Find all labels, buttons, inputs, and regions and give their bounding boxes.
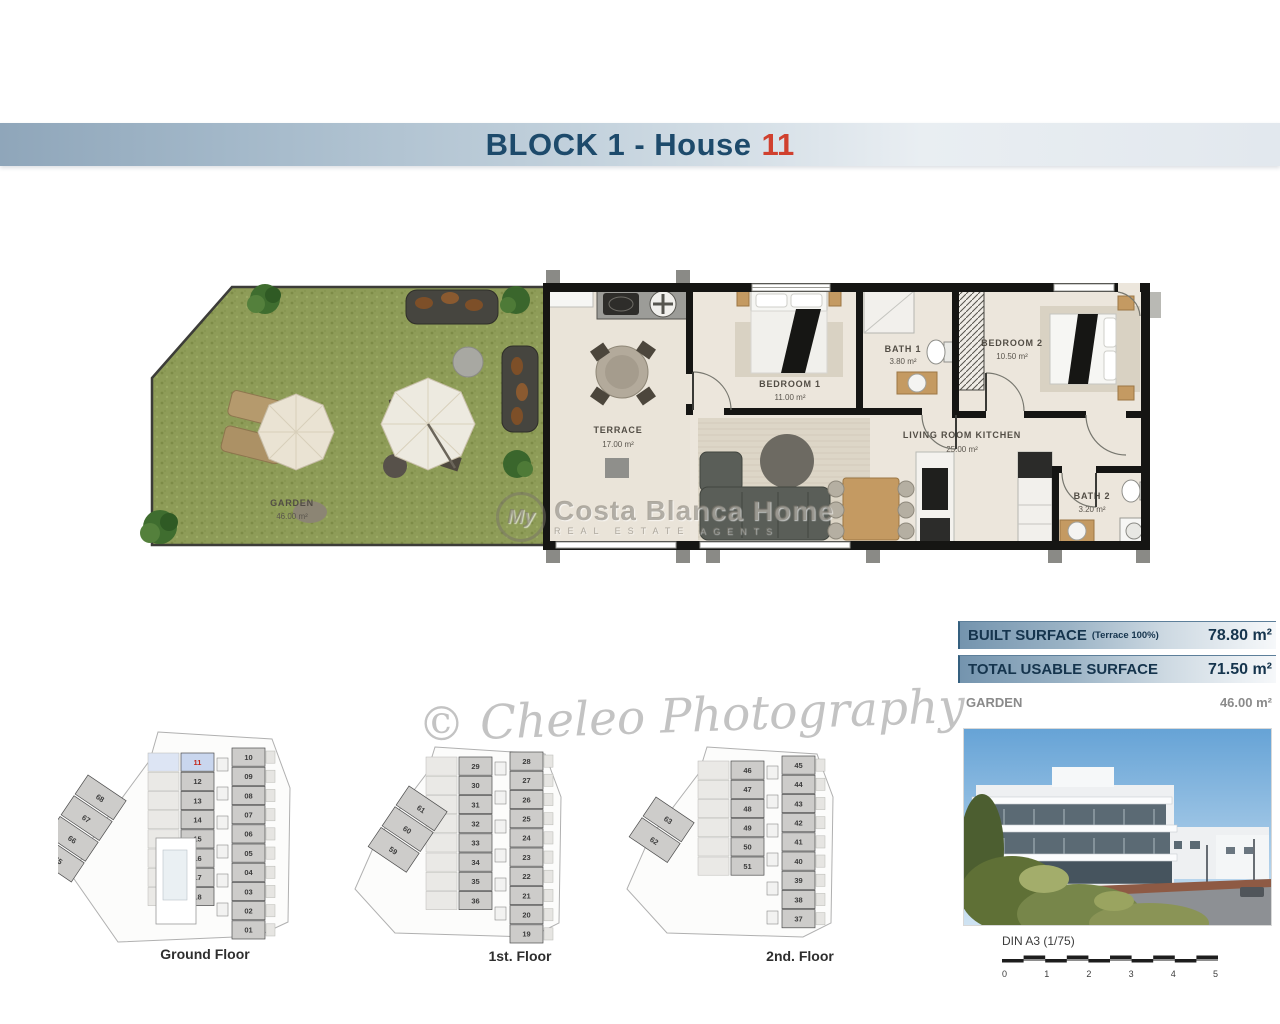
- unit-number: 41: [794, 838, 802, 847]
- unit-number: 26: [522, 795, 530, 804]
- room-area-living: 25.00 m²: [946, 445, 978, 454]
- balcony-cell: [816, 874, 825, 886]
- surface-note: (Terrace 100%): [1092, 630, 1159, 641]
- core-cell: [495, 762, 506, 775]
- room-label-bedroom2: BEDROOM 2: [981, 338, 1043, 348]
- unit-number: 32: [471, 820, 479, 829]
- terrace-cell: [426, 776, 457, 794]
- balcony-cell: [544, 774, 553, 786]
- unit-number: 38: [794, 895, 802, 904]
- scale-tick: 0: [1002, 969, 1007, 979]
- unit-number: 11: [194, 758, 202, 767]
- terrace-cell: [148, 811, 179, 829]
- keyplan-svg: 1112131415161718100908070605040302016867…: [58, 726, 320, 944]
- core-cell: [767, 795, 778, 808]
- unit-number: 10: [244, 753, 252, 762]
- garden-sofa-top: [406, 290, 498, 324]
- surface-label: TOTAL USABLE SURFACE: [968, 661, 1158, 678]
- unit-number: 12: [193, 777, 201, 786]
- balcony-cell: [266, 770, 275, 782]
- balcony-cell: [266, 751, 275, 763]
- core-cell: [767, 882, 778, 895]
- unit-number: 27: [522, 776, 530, 785]
- room-area-bedroom2: 10.50 m²: [996, 352, 1028, 361]
- room-label-garden: GARDEN: [270, 498, 314, 508]
- parasol-small: [258, 394, 334, 470]
- unit-number: 39: [794, 876, 802, 885]
- balcony-cell: [544, 793, 553, 805]
- balcony-cell: [544, 755, 553, 767]
- scale-bar: DIN A3 (1/75) 0 1 2 3 4 5: [1002, 934, 1232, 979]
- core-cell: [767, 824, 778, 837]
- unit-number: 02: [244, 907, 252, 916]
- core-cell: [767, 911, 778, 924]
- bedroom2-furniture: [1040, 296, 1140, 400]
- garden-table: [453, 347, 483, 377]
- surface-table: BUILT SURFACE (Terrace 100%) 78.80 m² TO…: [958, 621, 1276, 722]
- balcony-cell: [266, 866, 275, 878]
- unit-number: 23: [522, 853, 530, 862]
- unit-number: 25: [522, 815, 530, 824]
- unit-number: 01: [244, 926, 252, 935]
- balcony-cell: [544, 909, 553, 921]
- surface-label: BUILT SURFACE: [968, 627, 1087, 644]
- room-label-bath2: BATH 2: [1074, 491, 1111, 501]
- unit-number: 43: [794, 799, 802, 808]
- scale-tick: 2: [1086, 969, 1091, 979]
- unit-number: 20: [522, 911, 530, 920]
- unit-number: 46: [743, 766, 751, 775]
- unit-number: 13: [193, 796, 201, 805]
- keyplan-ground-floor: 1112131415161718100908070605040302016867…: [58, 726, 320, 949]
- unit-number: 42: [794, 819, 802, 828]
- room-label-bath1: BATH 1: [885, 344, 922, 354]
- unit-number: 06: [244, 830, 252, 839]
- terrace-cell: [698, 761, 729, 779]
- core-cell: [767, 766, 778, 779]
- scale-tick: 1: [1044, 969, 1049, 979]
- pool: [163, 850, 187, 900]
- keyplan-label-second: 2nd. Floor: [715, 948, 885, 964]
- surface-row-built: BUILT SURFACE (Terrace 100%) 78.80 m²: [958, 621, 1276, 649]
- room-area-bedroom1: 11.00 m²: [775, 393, 806, 402]
- terrace-cell: [426, 891, 457, 909]
- unit-number: 14: [193, 816, 202, 825]
- terrace-cell: [698, 780, 729, 798]
- surface-row-usable: TOTAL USABLE SURFACE 71.50 m²: [958, 655, 1276, 683]
- unit-number: 22: [522, 872, 530, 881]
- room-area-terrace: 17.00 m²: [602, 440, 634, 449]
- terrace-cell: [426, 757, 457, 775]
- core-cell: [217, 874, 228, 887]
- unit-number: 34: [471, 858, 480, 867]
- unit-number: 09: [244, 772, 252, 781]
- main-floor-plan: GARDEN 46.00 m² TERRACE 17.00 m² BEDROOM…: [118, 266, 1166, 570]
- keyplan-svg: 2930313233343536282726252423222120196160…: [333, 731, 598, 946]
- balcony-cell: [266, 789, 275, 801]
- balcony-cell: [816, 759, 825, 771]
- balcony-cell: [816, 817, 825, 829]
- unit-number: 24: [522, 834, 531, 843]
- unit-number: 04: [244, 868, 253, 877]
- balcony-cell: [544, 928, 553, 940]
- scale-ticks: 0 1 2 3 4 5: [1002, 969, 1218, 979]
- balcony-cell: [816, 893, 825, 905]
- surface-value: 78.80 m²: [1208, 627, 1272, 645]
- balcony-cell: [816, 778, 825, 790]
- wardrobe: [958, 290, 984, 390]
- unit-number: 03: [244, 887, 252, 896]
- unit-number: 45: [794, 761, 802, 770]
- balcony-cell: [544, 813, 553, 825]
- terrace-cell: [426, 853, 457, 871]
- core-cell: [495, 849, 506, 862]
- scale-tick: 3: [1129, 969, 1134, 979]
- page-title: BLOCK 1 - House: [486, 127, 752, 163]
- unit-number: 48: [743, 804, 751, 813]
- terrace-floor: [545, 287, 690, 545]
- unit-number: 08: [244, 791, 252, 800]
- scale-label: DIN A3 (1/75): [1002, 934, 1232, 948]
- balcony-cell: [816, 855, 825, 867]
- balcony-cell: [266, 905, 275, 917]
- balcony-cell: [266, 885, 275, 897]
- terrace-cell: [426, 872, 457, 890]
- balcony-cell: [816, 913, 825, 925]
- core-cell: [217, 816, 228, 829]
- core-cell: [495, 791, 506, 804]
- balcony-cell: [266, 809, 275, 821]
- unit-number: 36: [471, 896, 479, 905]
- garden-sofa-right: [502, 346, 538, 432]
- room-label-living: LIVING ROOM KITCHEN: [903, 430, 1021, 440]
- unit-number: 05: [244, 849, 252, 858]
- surface-value: 71.50 m²: [1208, 661, 1272, 679]
- plan-sheet: { "header": { "title": "BLOCK 1 - House"…: [0, 0, 1280, 1024]
- page-title-house-number: 11: [762, 127, 795, 163]
- unit-number: 35: [471, 877, 479, 886]
- balcony-cell: [544, 851, 553, 863]
- unit-number: 49: [743, 824, 751, 833]
- surface-value: 46.00 m²: [1220, 695, 1272, 710]
- terrace-cell: [698, 838, 729, 856]
- header-band: BLOCK 1 - House 11: [0, 123, 1280, 166]
- unit-number: 37: [794, 915, 802, 924]
- core-cell: [217, 787, 228, 800]
- surface-label: GARDEN: [966, 695, 1022, 710]
- room-area-garden: 46.00 m²: [276, 512, 308, 521]
- unit-number: 33: [471, 839, 479, 848]
- scale-tick: 4: [1171, 969, 1176, 979]
- garden-area: GARDEN 46.00 m²: [140, 284, 545, 545]
- balcony-cell: [816, 836, 825, 848]
- scale-tick: 5: [1213, 969, 1218, 979]
- balcony-cell: [266, 828, 275, 840]
- core-cell: [217, 845, 228, 858]
- core-cell: [767, 853, 778, 866]
- unit-number: 50: [743, 843, 751, 852]
- room-label-bedroom1: BEDROOM 1: [759, 379, 821, 389]
- unit-number: 28: [522, 757, 530, 766]
- room-area-bath1: 3.80 m²: [889, 357, 916, 366]
- keyplan-label-first: 1st. Floor: [435, 948, 605, 964]
- terrace-cell: [148, 772, 179, 790]
- highlighted-garden-cell: [148, 753, 179, 771]
- unit-number: 30: [471, 781, 479, 790]
- room-label-terrace: TERRACE: [593, 425, 642, 435]
- balcony-cell: [544, 870, 553, 882]
- balcony-cell: [816, 797, 825, 809]
- surface-row-garden: GARDEN 46.00 m²: [958, 689, 1276, 716]
- balcony-cell: [544, 832, 553, 844]
- terrace-cell: [698, 819, 729, 837]
- terrace-cell: [698, 799, 729, 817]
- core-cell: [495, 820, 506, 833]
- keyplan-first-floor: 2930313233343536282726252423222120196160…: [333, 731, 598, 951]
- keyplan-svg: 4647484950514544434241403938376362: [603, 731, 878, 946]
- terrace-cell: [698, 857, 729, 875]
- core-cell: [217, 758, 228, 771]
- unit-number: 31: [471, 800, 479, 809]
- unit-number: 19: [522, 930, 530, 939]
- unit-number: 47: [743, 785, 751, 794]
- unit-number: 51: [743, 862, 751, 871]
- keyplan-second-floor: 4647484950514544434241403938376362: [603, 731, 878, 951]
- unit-number: 40: [794, 857, 802, 866]
- core-cell: [217, 903, 228, 916]
- unit-number: 29: [471, 762, 479, 771]
- core-cell: [495, 878, 506, 891]
- unit-number: 44: [794, 780, 803, 789]
- bedroom1-furniture: [735, 290, 843, 377]
- terrace-cell: [148, 791, 179, 809]
- keyplan-label-ground: Ground Floor: [120, 946, 290, 962]
- unit-number: 07: [244, 811, 252, 820]
- balcony-cell: [266, 924, 275, 936]
- core-cell: [495, 907, 506, 920]
- balcony-cell: [266, 847, 275, 859]
- unit-number: 21: [522, 891, 530, 900]
- building-photo: [963, 728, 1272, 926]
- scale-bar-graphic: [1002, 955, 1218, 963]
- balcony-cell: [544, 889, 553, 901]
